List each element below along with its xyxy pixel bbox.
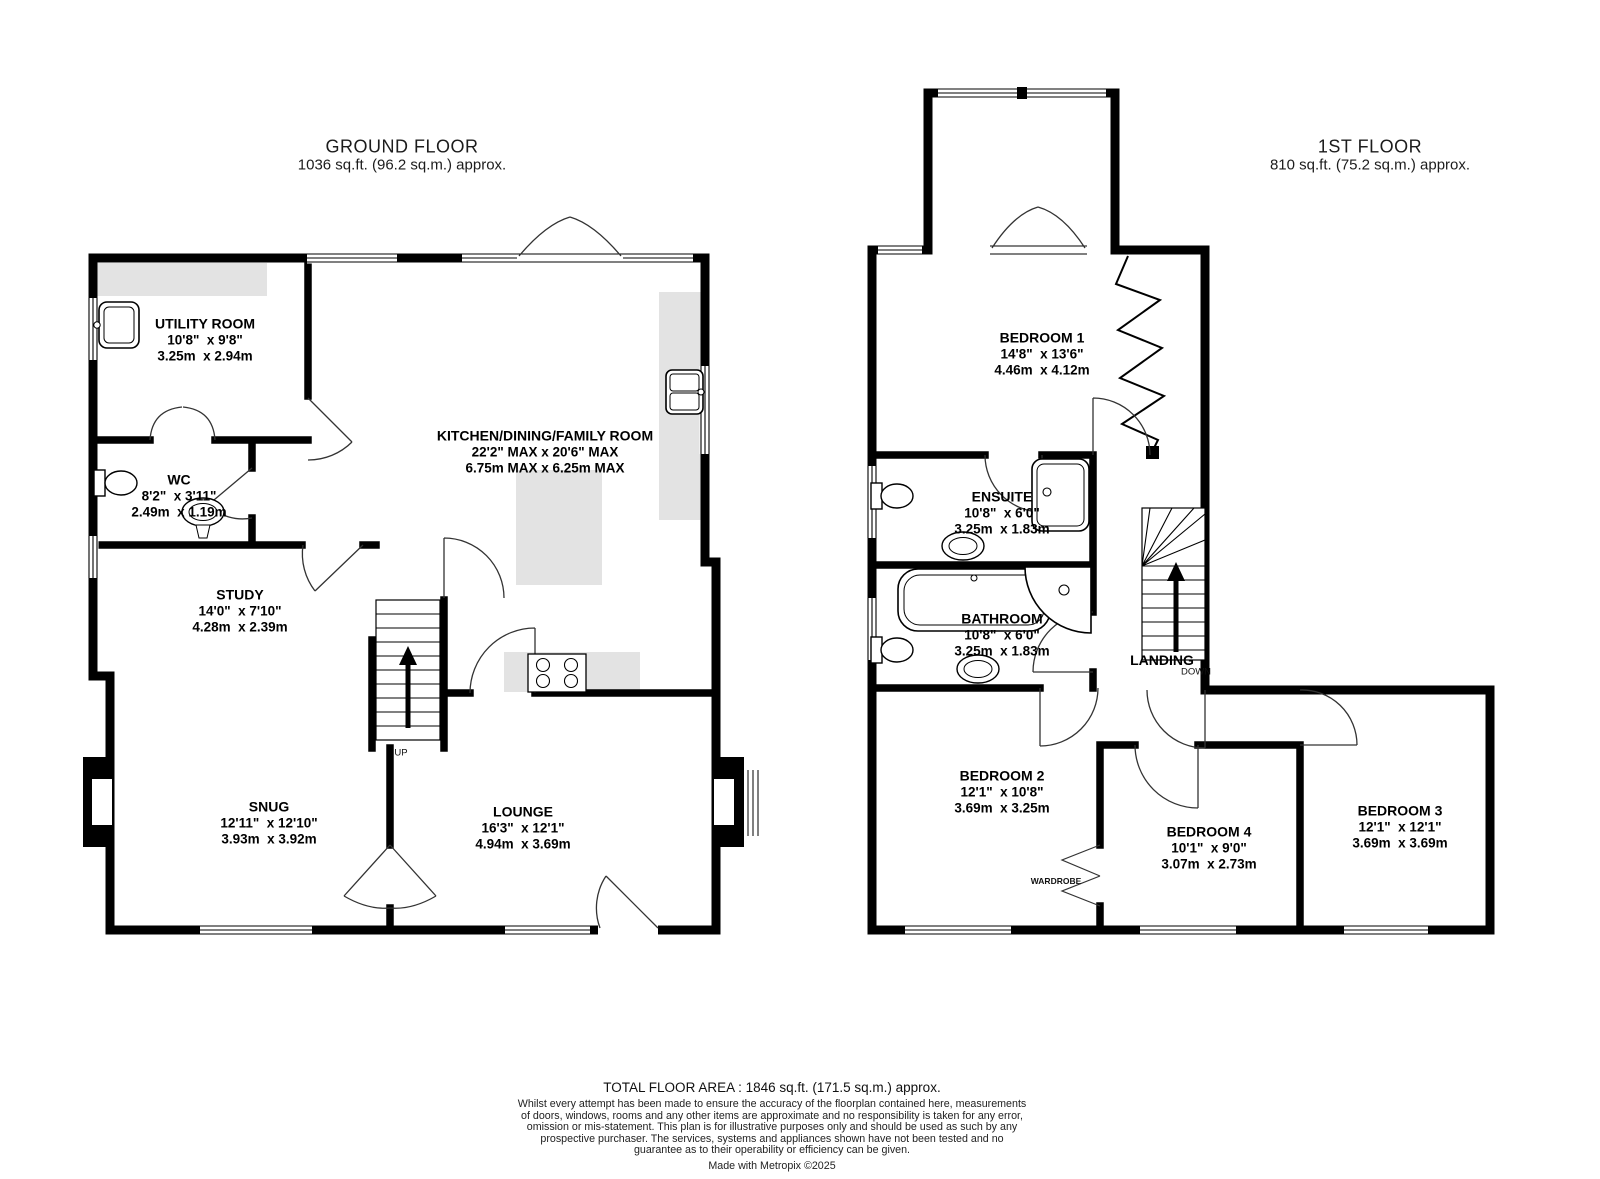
french-doors [517, 217, 623, 264]
chimney-breasts [83, 757, 758, 847]
room-label-ensuite: ENSUITE 10'8" x 6'0" 3.25m x 1.83m [954, 488, 1049, 537]
ground-floor-title: GROUND FLOOR [325, 137, 478, 158]
room-label-kitchen: KITCHEN/DINING/FAMILY ROOM 22'2" MAX x 2… [436, 427, 654, 476]
kitchen-island [516, 470, 602, 585]
room-label-bedroom4: BEDROOM 4 10'1" x 9'0" 3.07m x 2.73m [1161, 823, 1256, 872]
floorplan-page: { "ground_floor": { "title": "GROUND FLO… [0, 0, 1600, 1179]
bay-french-doors [990, 207, 1087, 256]
wardrobe-label: WARDROBE [1031, 876, 1082, 886]
room-label-snug: SNUG 12'11" x 12'10" 3.93m x 3.92m [220, 798, 317, 847]
ensuite-toilet-icon [871, 483, 913, 509]
stairs-down-label: DOWN [1181, 667, 1211, 678]
stairs-up-label: UP [394, 748, 407, 759]
bathroom-toilet-icon [871, 637, 913, 663]
zigzag-partition [1116, 256, 1164, 459]
first-floor-title: 1ST FLOOR [1318, 137, 1422, 158]
kitchen-sink-icon [666, 370, 704, 414]
room-label-bathroom: BATHROOM 10'8" x 6'0" 3.25m x 1.83m [954, 610, 1049, 659]
disclaimer-text: Whilst every attempt has been made to en… [517, 1099, 1027, 1157]
room-label-utility: UTILITY ROOM 10'8" x 9'8" 3.25m x 2.94m [155, 315, 255, 364]
staircase-up [376, 600, 440, 740]
ground-floor-area: 1036 sq.ft. (96.2 sq.m.) approx. [298, 157, 506, 174]
first-floor-area: 810 sq.ft. (75.2 sq.m.) approx. [1270, 157, 1470, 174]
hob-icon [528, 654, 586, 692]
room-label-bedroom3: BEDROOM 3 12'1" x 12'1" 3.69m x 3.69m [1352, 802, 1447, 851]
room-label-wc: WC 8'2" x 3'11" 2.49m x 1.19m [131, 471, 226, 520]
room-label-lounge: LOUNGE 16'3" x 12'1" 4.94m x 3.69m [475, 803, 570, 852]
total-floor-area: TOTAL FLOOR AREA : 1846 sq.ft. (171.5 sq… [603, 1080, 940, 1095]
room-label-bedroom2: BEDROOM 2 12'1" x 10'8" 3.69m x 3.25m [954, 767, 1049, 816]
room-label-study: STUDY 14'0" x 7'10" 4.28m x 2.39m [192, 586, 287, 635]
staircase-down [1142, 508, 1205, 660]
credit-text: Made with Metropix ©2025 [708, 1160, 835, 1172]
utility-sink-icon [94, 302, 139, 348]
room-label-bedroom1: BEDROOM 1 14'8" x 13'6" 4.46m x 4.12m [994, 329, 1089, 378]
